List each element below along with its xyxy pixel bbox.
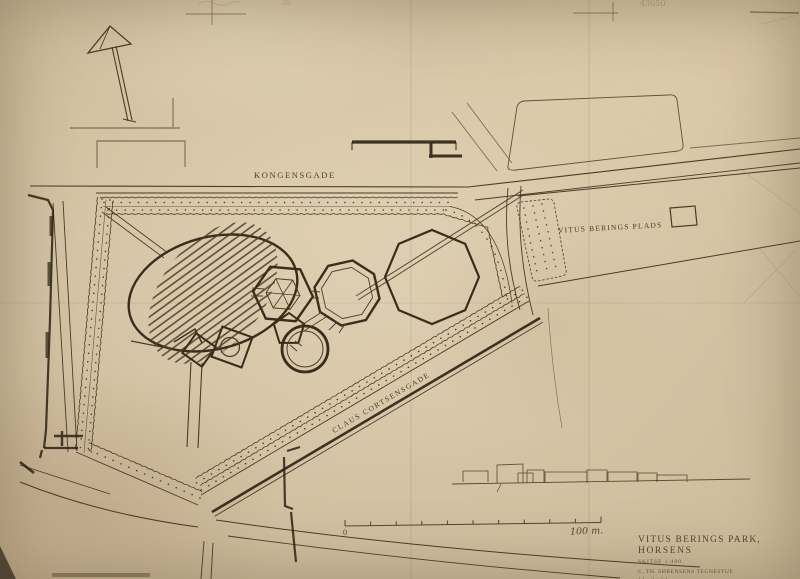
scanned-park-plan: KONGENSGADE VITUS BERINGS PLADS CLAUS CO… [0, 0, 800, 579]
plan-subtitle: SKITSE 1:400. [638, 559, 761, 565]
bottom-streets [20, 308, 700, 579]
park-interior [69, 154, 525, 448]
plan-linework [0, 0, 800, 579]
street-label-kongensgade: KONGENSGADE [254, 171, 336, 180]
scale-start-label: 0 [343, 529, 347, 537]
city-block-topright [452, 95, 800, 171]
plan-title-line2: HORSENS [638, 546, 761, 556]
building-wall-marks [352, 142, 462, 158]
plaza-building [670, 206, 697, 227]
scale-bar [345, 517, 601, 527]
right-edge-pencil [742, 170, 800, 303]
left-street-buildings [28, 195, 78, 458]
pencil-number: 43050 [640, 0, 666, 8]
elevation-sketch [452, 464, 750, 492]
plan-office: C. TH. SØRENSENS TEGNESTUE [638, 569, 761, 575]
registration-marks [186, 0, 799, 25]
north-arrow-icon [88, 26, 136, 122]
south-path [187, 362, 202, 448]
scale-end-label: 100 m. [570, 526, 603, 537]
plan-title-line1: VITUS BERINGS PARK, [638, 535, 761, 545]
city-blocks-topleft [70, 98, 185, 168]
plaza-vitus-berings-plads [507, 168, 800, 315]
large-octagon-garden [385, 230, 479, 324]
circle-garden [282, 326, 328, 372]
kongensgade-street [30, 149, 800, 200]
title-block: VITUS BERINGS PARK, HORSENS SKITSE 1:400… [638, 535, 761, 579]
pencil-number: 35 [282, 0, 291, 7]
